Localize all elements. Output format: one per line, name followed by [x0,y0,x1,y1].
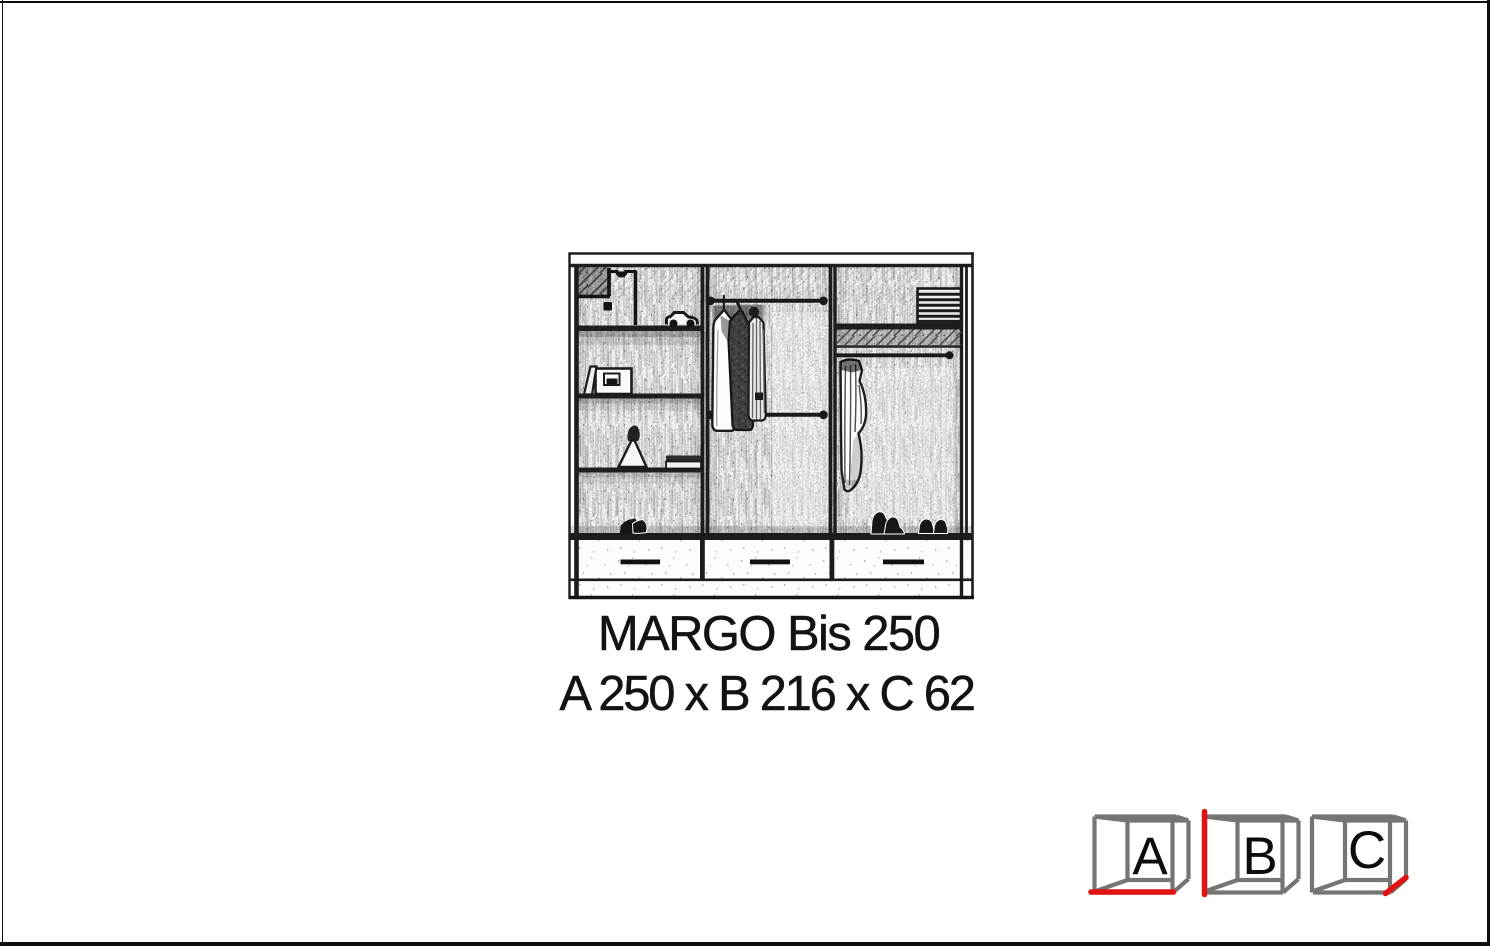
svg-text:B: B [1242,827,1277,886]
svg-text:C: C [1348,821,1386,880]
svg-text:A: A [1132,827,1168,886]
